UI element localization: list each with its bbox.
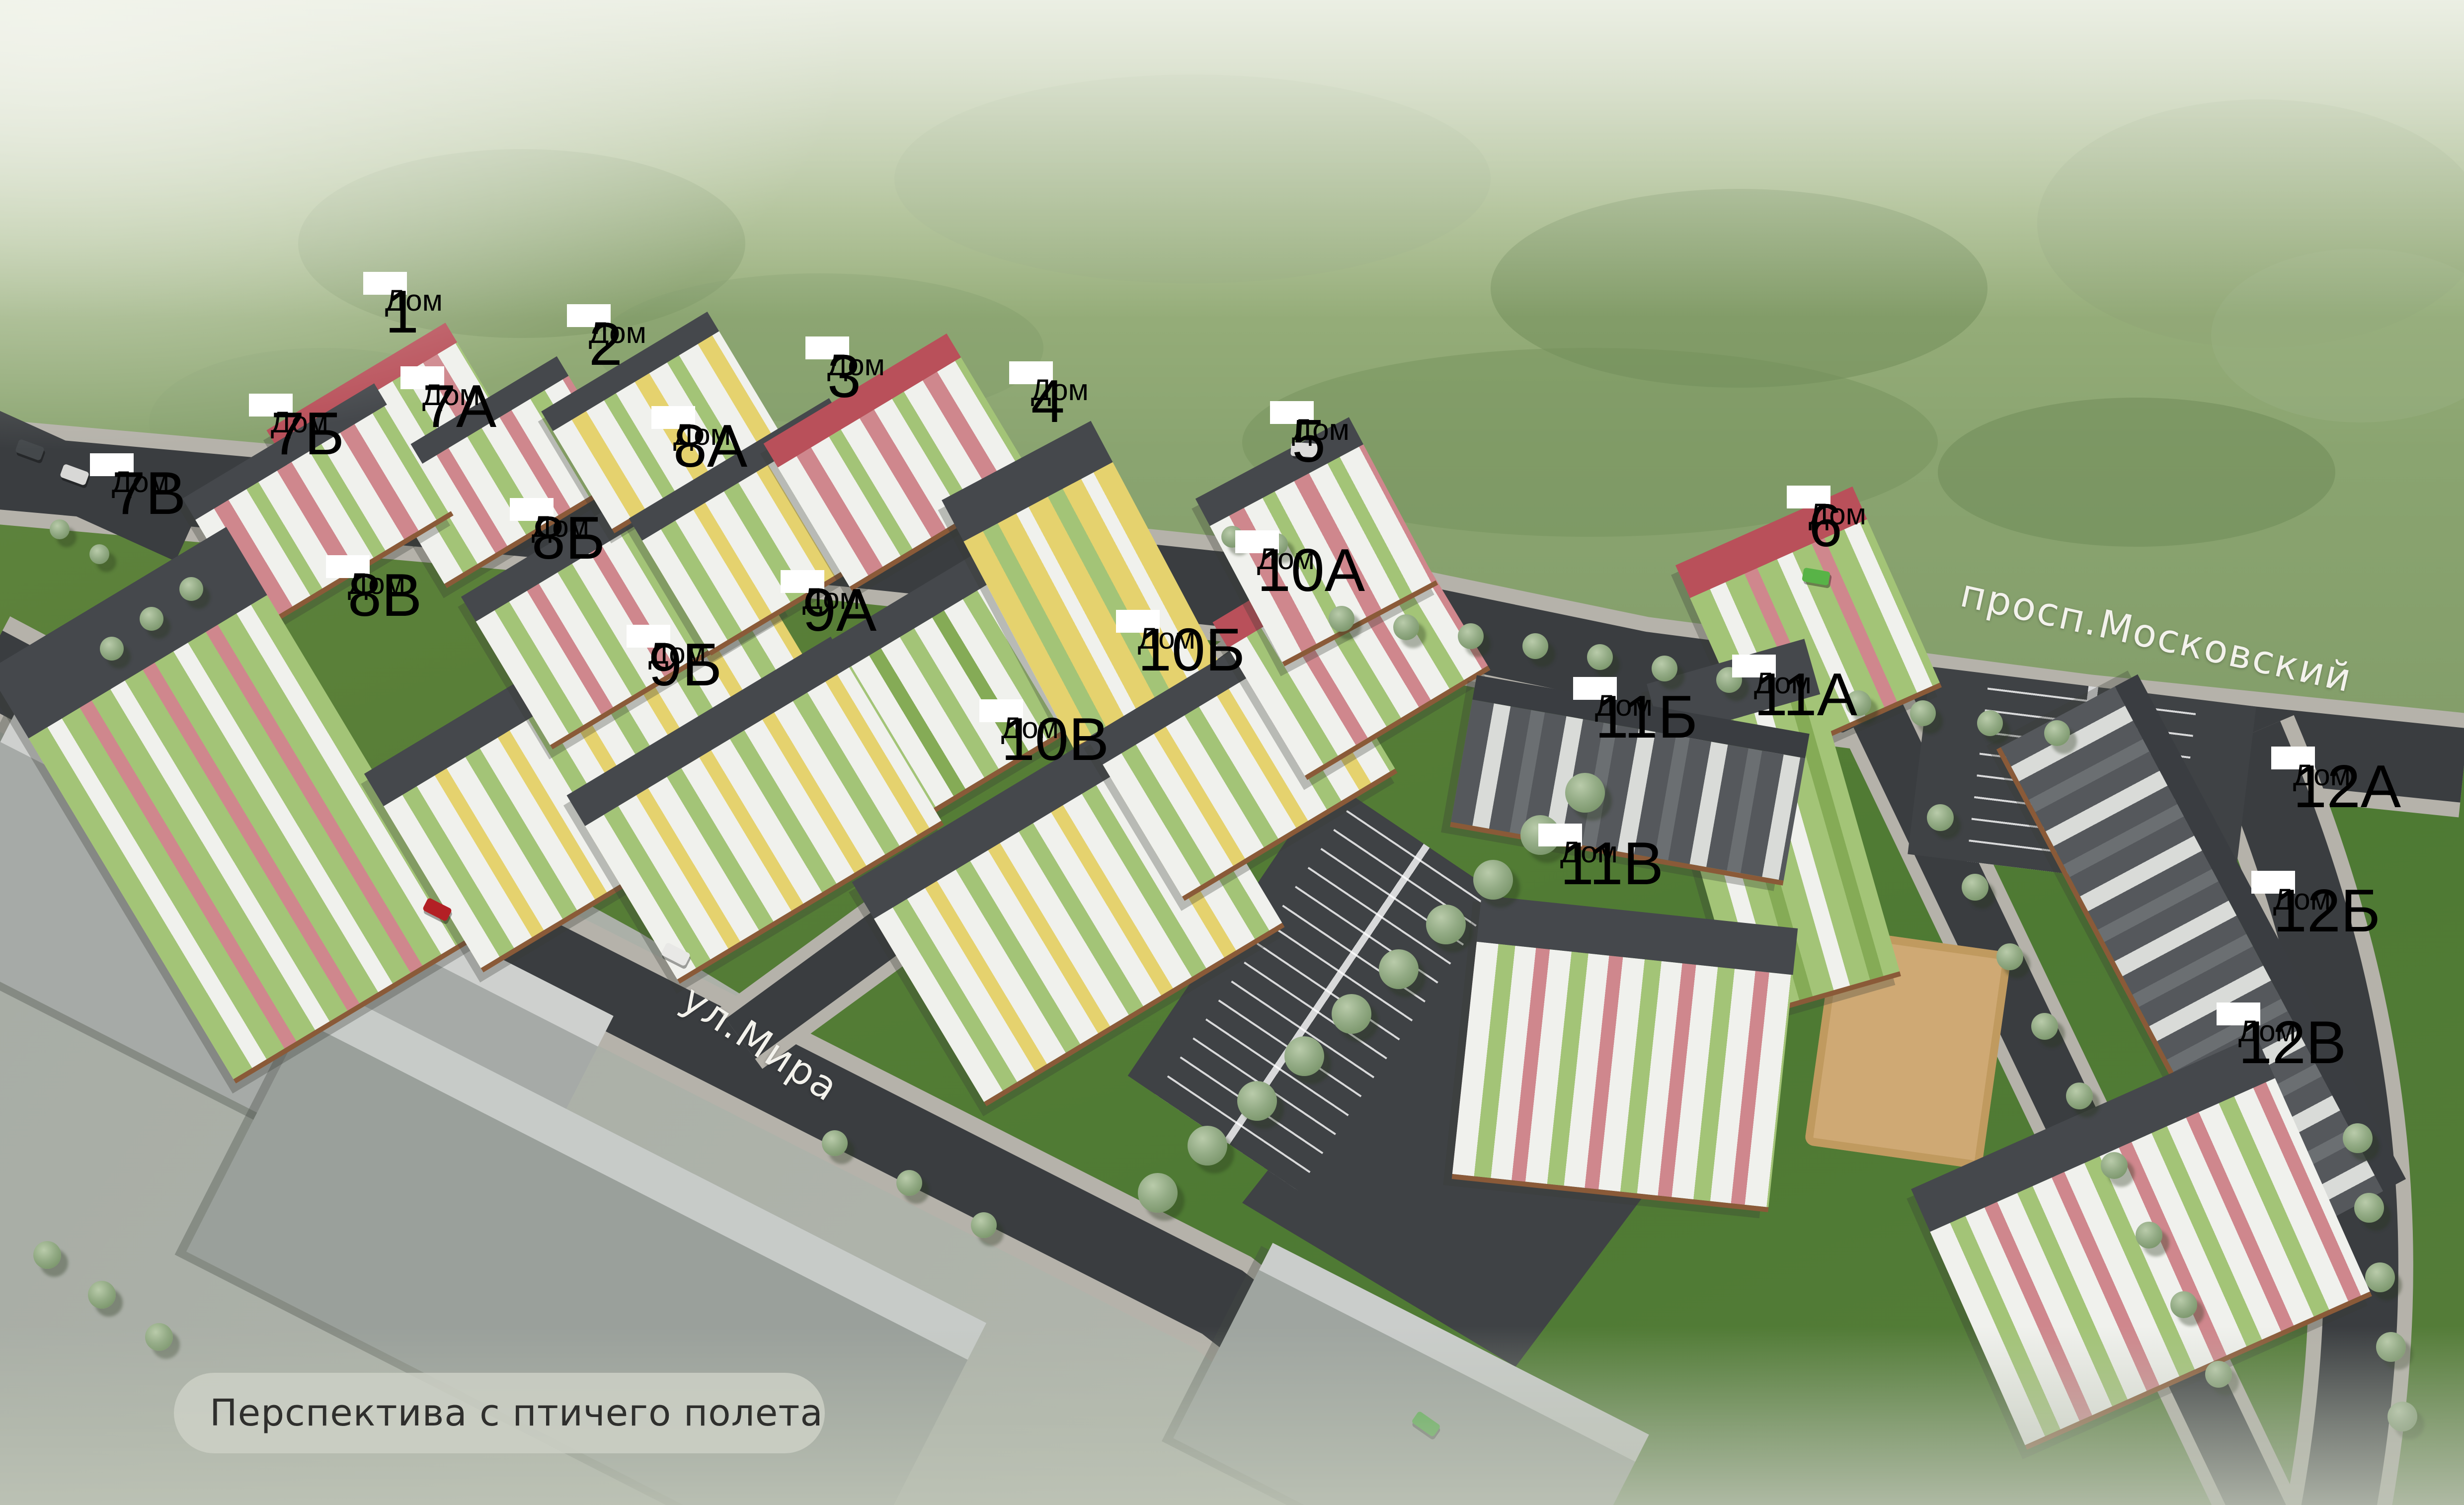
building-label: 7БДом bbox=[249, 394, 293, 417]
building-word: Дом bbox=[1595, 691, 1653, 721]
building-label: 11БДом bbox=[1573, 677, 1617, 700]
building-word: Дом bbox=[348, 569, 405, 599]
caption-text: Перспектива с птичего полета bbox=[210, 1392, 823, 1434]
building-word: Дом bbox=[827, 350, 885, 380]
building-word: Дом bbox=[802, 584, 860, 614]
building-label: 10ВДом bbox=[979, 699, 1023, 722]
building-word: Дом bbox=[2273, 885, 2331, 915]
building-label: 12БДом bbox=[2251, 871, 2295, 894]
building-label: 11ВДом bbox=[1538, 824, 1582, 846]
building-word: Дом bbox=[648, 639, 706, 669]
building-word: Дом bbox=[532, 512, 589, 542]
building-word: Дом bbox=[422, 380, 480, 410]
master-plan-rendering: ул.Мирапросп.Московский 1Дом2Дом3Дом4Дом… bbox=[0, 0, 2464, 1505]
building-word: Дом bbox=[271, 408, 328, 437]
building-word: Дом bbox=[1138, 624, 1195, 654]
building-label: 5Дом bbox=[1270, 401, 1314, 424]
building-label: 10АДом bbox=[1235, 530, 1279, 553]
building-label: 12ВДом bbox=[2217, 1003, 2260, 1025]
building-word: Дом bbox=[589, 318, 646, 348]
building-word: Дом bbox=[2293, 760, 2351, 790]
building-word: Дом bbox=[1292, 415, 1350, 445]
building-label: 1Дом bbox=[363, 272, 407, 295]
building-word: Дом bbox=[1754, 669, 1812, 698]
building-label: 2Дом bbox=[567, 304, 611, 327]
building-label: 9БДом bbox=[627, 625, 670, 648]
building-word: Дом bbox=[1031, 375, 1089, 405]
building-label: 6Дом bbox=[1787, 486, 1830, 508]
building-word: Дом bbox=[1560, 837, 1618, 867]
building-label: 10БДом bbox=[1116, 610, 1160, 633]
building-labels: 1Дом2Дом3Дом4Дом5Дом6Дом7АДом7БДом7ВДом8… bbox=[0, 0, 2464, 1505]
building-word: Дом bbox=[112, 467, 169, 497]
building-label: 12АДом bbox=[2271, 747, 2315, 769]
building-label: 7АДом bbox=[400, 366, 444, 389]
building-word: Дом bbox=[2238, 1016, 2296, 1046]
building-label: 3Дом bbox=[805, 336, 849, 359]
building-word: Дом bbox=[385, 286, 443, 316]
building-label: 11АДом bbox=[1732, 655, 1776, 677]
caption-pill: Перспектива с птичего полета bbox=[174, 1373, 825, 1453]
building-word: Дом bbox=[1001, 713, 1059, 743]
building-label: 8ВДом bbox=[326, 555, 370, 578]
building-word: Дом bbox=[1257, 544, 1315, 574]
building-label: 9АДом bbox=[781, 570, 824, 593]
building-label: 8АДом bbox=[651, 406, 695, 429]
building-word: Дом bbox=[673, 420, 731, 450]
building-label: 8БДом bbox=[510, 498, 554, 521]
building-label: 7ВДом bbox=[90, 453, 134, 476]
building-label: 4Дом bbox=[1009, 361, 1053, 384]
building-word: Дом bbox=[1809, 500, 1866, 529]
